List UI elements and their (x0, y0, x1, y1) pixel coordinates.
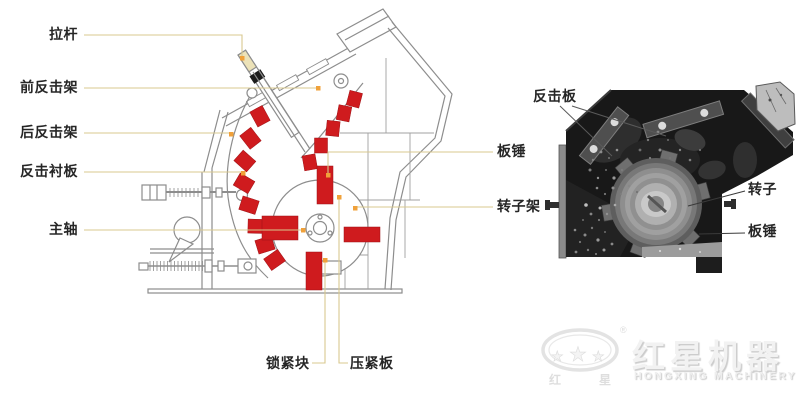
label-photo-impact-plate: 反击板 (533, 90, 577, 105)
label-photo-blow-bar: 板锤 (748, 225, 777, 240)
star-icon: ★ (569, 344, 587, 366)
star-icon: ★ (592, 348, 605, 364)
impact-crusher-diagram-page: 拉杆 前反击架 后反击架 反击衬板 主轴 板锤 转子架 锁紧块 压紧板 反击板 … (0, 0, 800, 400)
label-pull-rod: 拉杆 (8, 28, 78, 43)
hongxing-logo: ★ ★ ★ ® 红 星 红星机器 HONGXING MACHINERY (538, 318, 800, 396)
label-photo-rotor: 转子 (748, 183, 777, 198)
hongxing-logo-emblem: ★ ★ ★ ® 红 星 (538, 320, 638, 392)
brand-name-en: HONGXING MACHINERY (634, 370, 797, 382)
label-pressing-plate: 压紧板 (350, 357, 394, 372)
label-rear-impact-frame: 后反击架 (8, 126, 78, 141)
label-front-impact-frame: 前反击架 (8, 81, 78, 96)
label-locking-block: 锁紧块 (266, 357, 310, 372)
label-main-shaft: 主轴 (8, 223, 78, 238)
seal-char-right: 星 (599, 373, 611, 387)
registered-mark: ® (620, 325, 627, 335)
label-rotor-frame: 转子架 (497, 200, 541, 215)
interior-photo (545, 82, 795, 273)
seal-char-left: 红 (549, 372, 561, 387)
label-blow-bar: 板锤 (497, 145, 526, 160)
star-icon: ★ (551, 348, 564, 364)
label-impact-liner: 反击衬板 (8, 165, 78, 180)
crusher-section-diagram (139, 9, 452, 293)
